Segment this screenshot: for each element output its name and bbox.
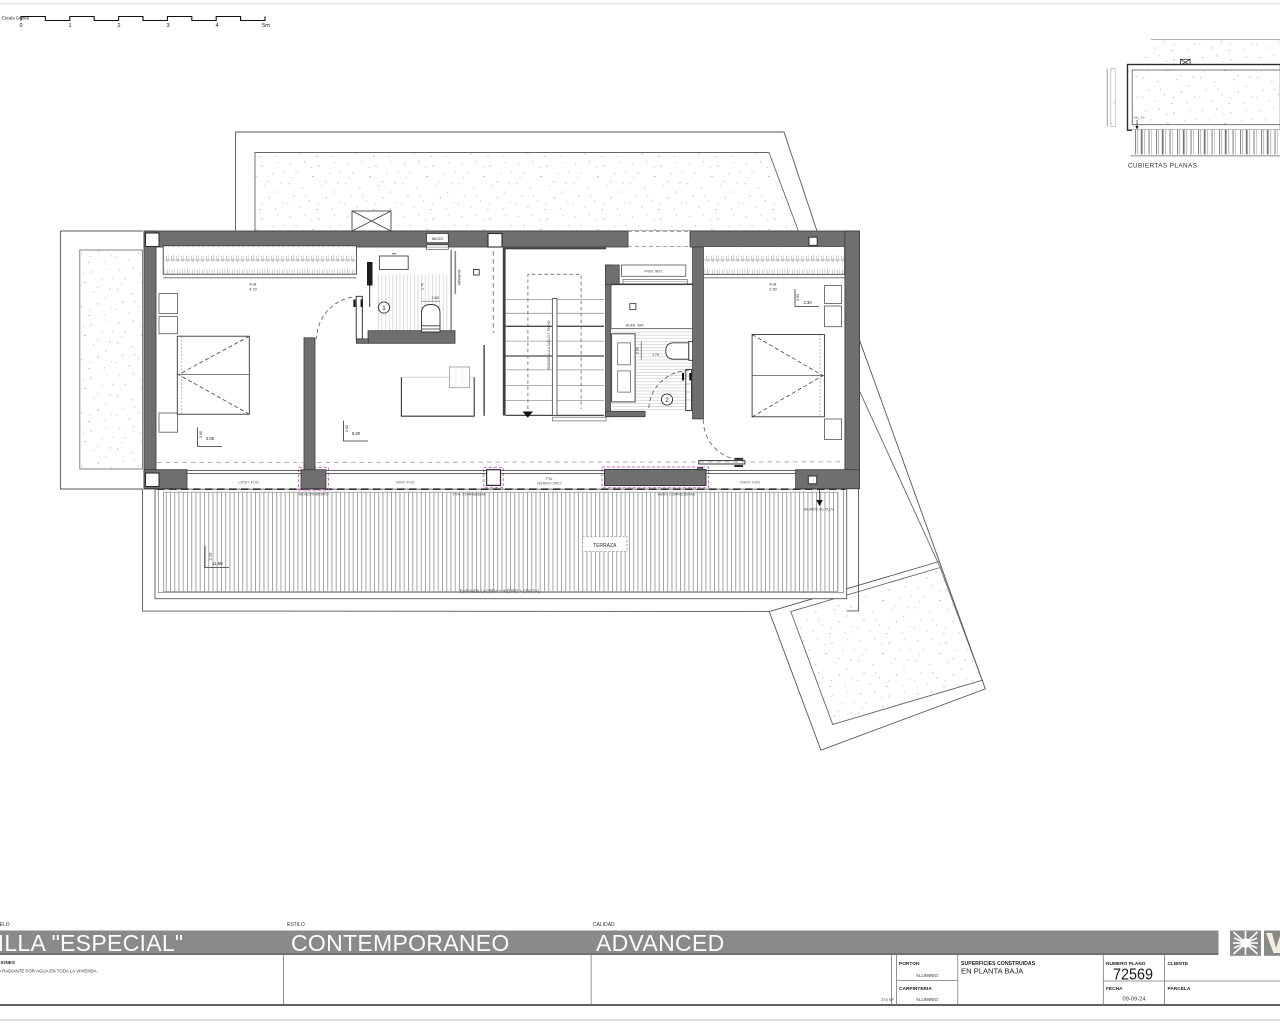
- svg-text:2: 2: [117, 23, 120, 29]
- svg-text:3: 3: [166, 23, 169, 29]
- svg-text:ALUMINIO: ALUMINIO: [916, 973, 939, 978]
- svg-text:CARPINTERIA: CARPINTERIA: [899, 986, 932, 992]
- svg-text:CRIST. FIJO: CRIST. FIJO: [238, 481, 258, 485]
- svg-text:PARCELA: PARCELA: [1168, 986, 1191, 992]
- svg-text:2: 2: [665, 397, 669, 404]
- svg-text:1.70: 1.70: [420, 283, 424, 290]
- svg-text:4.20: 4.20: [249, 288, 256, 292]
- svg-text:A+B: A+B: [770, 283, 777, 287]
- svg-text:8.00: 8.00: [352, 431, 361, 436]
- svg-text:BARANDILLA A SUELO Y TECHO: BARANDILLA A SUELO Y TECHO: [547, 320, 551, 369]
- svg-text:EN PLANTA BAJA: EN PLANTA BAJA: [961, 967, 1024, 976]
- svg-text:CUBIERTAS PLANAS: CUBIERTAS PLANAS: [1128, 163, 1197, 170]
- svg-text:72569: 72569: [1113, 967, 1153, 984]
- svg-text:CALIDAD: CALIDAD: [593, 922, 615, 928]
- svg-text:CRIST. FIJO: CRIST. FIJO: [740, 481, 760, 485]
- svg-text:2.10: 2.10: [208, 552, 213, 561]
- svg-text:2.60: 2.60: [432, 296, 439, 300]
- svg-text:ADVANCED: ADVANCED: [596, 930, 725, 956]
- svg-text:3.90: 3.90: [199, 431, 203, 438]
- svg-text:09-09-24: 09-09-24: [1122, 997, 1146, 1003]
- svg-text:VILLA "ESPECIAL": VILLA "ESPECIAL": [0, 930, 183, 956]
- svg-text:OBSERVACIONES: OBSERVACIONES: [0, 960, 15, 965]
- svg-text:0: 0: [19, 23, 22, 29]
- svg-text:REVESTIMIENTO: REVESTIMIENTO: [298, 492, 328, 496]
- svg-text:PREV. INST.: PREV. INST.: [644, 269, 663, 273]
- svg-text:PTA. CORREDERA: PTA. CORREDERA: [453, 492, 486, 496]
- svg-text:3.93: 3.93: [796, 294, 800, 301]
- svg-text:BAJANTE AG. PLUV.: BAJANTE AG. PLUV.: [804, 508, 835, 512]
- svg-text:CONTEMPORANEO: CONTEMPORANEO: [291, 930, 510, 956]
- svg-text:INICIO: INICIO: [432, 237, 444, 241]
- svg-text:A+B: A+B: [250, 283, 257, 287]
- svg-text:5m: 5m: [262, 23, 270, 29]
- svg-text:PORTON: PORTON: [899, 961, 920, 967]
- svg-text:4: 4: [215, 23, 218, 29]
- svg-text:SUELO RADIANTE POR AGUA EN TOD: SUELO RADIANTE POR AGUA EN TODA LA VIVIE…: [0, 969, 98, 974]
- svg-text:CLIENTE: CLIENTE: [1168, 961, 1189, 967]
- svg-text:BARANDILLA OBRA + HIERRO + CRI: BARANDILLA OBRA + HIERRO + CRISTAL: [460, 589, 541, 594]
- svg-text:FECHA: FECHA: [1106, 986, 1123, 992]
- svg-text:VENT. FIJO: VENT. FIJO: [396, 481, 415, 485]
- svg-text:MODELO: MODELO: [0, 922, 10, 928]
- svg-text:PTA.: PTA.: [546, 477, 553, 481]
- svg-text:HIERRO CRIST.: HIERRO CRIST.: [537, 481, 562, 485]
- svg-text:3.00: 3.00: [206, 436, 215, 441]
- svg-text:2.60: 2.60: [636, 347, 640, 354]
- svg-text:2.50: 2.50: [769, 288, 776, 292]
- svg-text:TERRAZA: TERRAZA: [593, 543, 617, 549]
- svg-text:2.30: 2.30: [804, 300, 813, 305]
- svg-text:2.60: 2.60: [345, 425, 349, 432]
- svg-text:ESTILO: ESTILO: [287, 922, 305, 928]
- svg-text:Min. 1%: Min. 1%: [1134, 116, 1145, 120]
- svg-text:11.98: 11.98: [212, 561, 223, 566]
- svg-text:ALUMINIO: ALUMINIO: [916, 997, 939, 1002]
- svg-text:1: 1: [68, 23, 71, 29]
- svg-text:VENT. CORREDERAS: VENT. CORREDERAS: [657, 492, 695, 496]
- svg-text:1: 1: [382, 305, 386, 312]
- svg-text:274 SF: 274 SF: [881, 997, 894, 1002]
- svg-text:MUEB. VAR.: MUEB. VAR.: [626, 324, 645, 328]
- svg-text:1.70: 1.70: [652, 353, 659, 357]
- svg-text:ARMARIO: ARMARIO: [458, 269, 462, 285]
